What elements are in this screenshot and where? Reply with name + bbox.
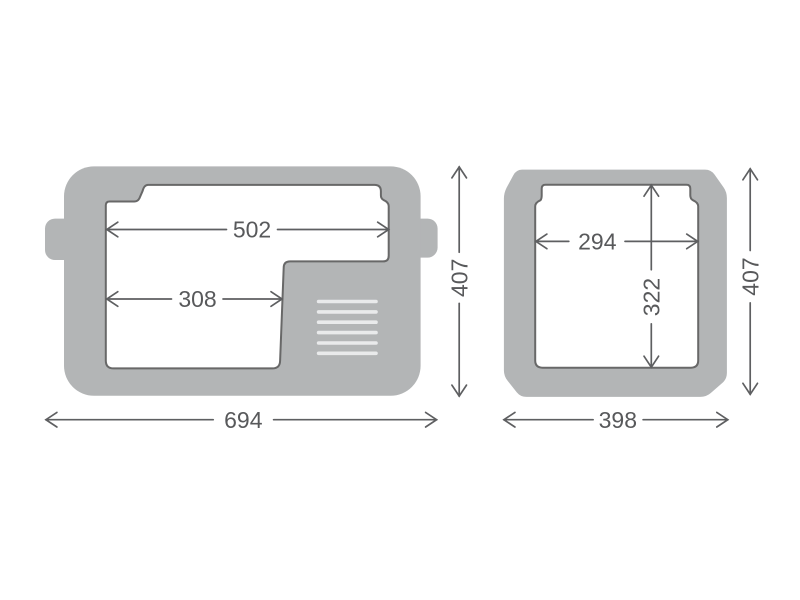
svg-text:407: 407 [737, 257, 763, 295]
svg-text:398: 398 [599, 407, 637, 433]
svg-text:407: 407 [446, 259, 472, 297]
svg-text:294: 294 [578, 229, 617, 255]
svg-text:308: 308 [178, 286, 216, 312]
svg-text:502: 502 [233, 217, 271, 243]
svg-text:694: 694 [224, 407, 263, 433]
svg-text:322: 322 [638, 278, 664, 316]
